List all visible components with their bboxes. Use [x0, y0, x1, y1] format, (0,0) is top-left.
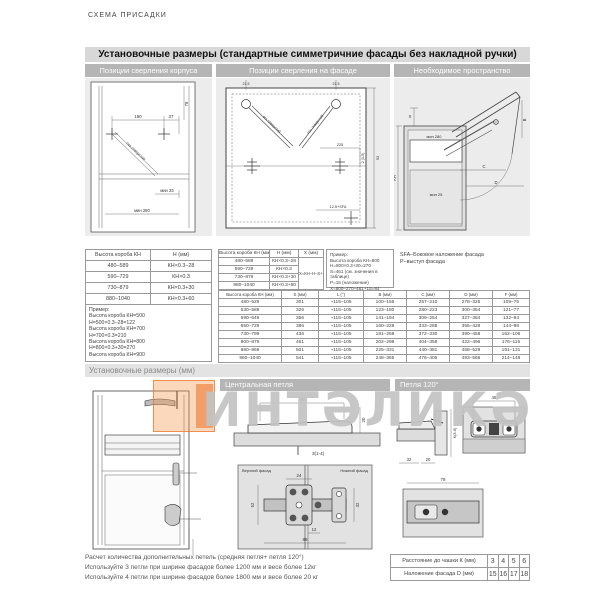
legend-sfa: SFA–Боковое наложение фасада — [400, 252, 530, 259]
central-hinge-plan-diagram: Верхний фасад Нижний фасад 24 52 — [238, 465, 372, 549]
table-row: 590–649356~115–105141–194309–254327–3841… — [219, 315, 530, 323]
legend-p: Р–выступ фасада — [400, 259, 530, 266]
table-row: 480–589КН×0.3–28 — [86, 261, 212, 272]
calc-example-box: Пример: Высота короба КН=800 Н=800×0.3+3… — [326, 249, 394, 288]
panel-title-facade: Позиции сверления на фасаде — [216, 64, 390, 77]
dim-20-120: 20 — [426, 457, 431, 462]
dim-min280-space: мин 280 — [427, 134, 443, 139]
dim-225: 225 — [337, 143, 343, 147]
table-row: 880–959501~115–105225–331440–381458–5291… — [219, 347, 530, 355]
panel-title-corpus: Позиции сверления корпуса — [85, 64, 212, 77]
table-row: 480–589КН×0.3–28 Х=КН–Н–S+Р — [219, 258, 324, 266]
dim-78: 78 — [184, 101, 189, 106]
corpus-drilling-diagram: 190 37 78 ось отверстий мин 25 мин 280 — [85, 78, 212, 236]
height-example-box: Пример: Высота короба КН=500 Н=500×0.3–2… — [85, 304, 212, 362]
main-dimensions-table: Высота короба КН (мм) S (мм) L (°) В (мм… — [218, 290, 530, 363]
space-diagram-panel: X мин 280 мин 25 B C D КН — [394, 78, 530, 236]
page-kicker: СХЕМА ПРИСАДКИ — [88, 12, 167, 19]
dim-24: 24 — [297, 473, 302, 478]
cup-distance-table: Расстояние до чашки К (мм) 3 4 5 6 Налож… — [390, 554, 530, 581]
table-row: Расстояние до чашки К (мм) 3 4 5 6 — [391, 555, 530, 568]
dim-215-left: 21.5 — [243, 82, 250, 86]
dim-89-plan: 89 — [303, 537, 308, 542]
table-row: 650–729386~115–105160–228333–288355–4281… — [219, 323, 530, 331]
dim-12: 12 — [312, 527, 317, 532]
dim-190: 190 — [134, 114, 142, 119]
footer-note: Расчет количества дополнительных петель … — [85, 553, 385, 583]
dim-d: D — [494, 180, 497, 185]
facade-height-table: Высота короба КН (мм) Н (мм) Х (мм) 480–… — [218, 249, 324, 290]
dim-min25-space: мин 25 — [430, 192, 444, 197]
dim-c: C — [482, 164, 485, 169]
panel-title-space: Необходимое пространство — [394, 64, 530, 77]
dim-min280: мин 280 — [134, 208, 150, 213]
upper-facade-label: Верхний фасад — [242, 468, 272, 473]
table-row: 530–589326~115–105123–180280–223300–3541… — [219, 307, 530, 315]
watermark: ИНТƏЛИКƏ — [202, 386, 533, 436]
lower-facade-label: Нижний фасад — [340, 468, 368, 473]
legend-note: SFA–Боковое наложение фасада Р–выступ фа… — [400, 252, 530, 266]
document-page: СХЕМА ПРИСАДКИ Установочные размеры (ста… — [0, 0, 600, 600]
facade-diagram-panel: 21.5 21.5 ось отверстий ось отверстий 22… — [216, 78, 390, 236]
dim-52: 52 — [250, 502, 255, 507]
facade-drilling-diagram: 21.5 21.5 ось отверстий ось отверстий 22… — [216, 78, 390, 236]
height-table: Высота короба КНН (мм) 480–589КН×0.3–28 … — [85, 249, 212, 305]
dim-32-120: 32 — [407, 457, 412, 462]
dim-b: B — [522, 118, 527, 121]
page-title: Установочные размеры (стандартные симмет… — [85, 47, 530, 62]
table-row: 480–529301~115–105100–156257–210278–3251… — [219, 299, 530, 307]
dim-125-sfa: 12.5+SFA — [330, 205, 347, 209]
table-row: 960–1040541~115–105248–365476–405493–566… — [219, 355, 530, 363]
corpus-diagram-panel: 190 37 78 ось отверстий мин 25 мин 280 — [85, 78, 212, 236]
table-row: Наложение фасада D (мм) 15 16 17 18 — [391, 568, 530, 581]
dim-93: 93 — [376, 156, 380, 160]
dim-x: X — [409, 114, 412, 119]
table-row: 590–729КН×0.3 — [86, 272, 212, 283]
x-formula-cell: Х=КН–Н–S+Р — [299, 258, 324, 290]
table-row: 730–879КН×0.3+30 — [86, 283, 212, 294]
dim-78: 78 — [441, 477, 446, 482]
dim-3-1-4: 3(1-4) — [312, 451, 325, 456]
dim-2-3-5: 2 (3-5) — [361, 153, 365, 164]
dim-32-plan: 32 — [355, 502, 360, 507]
table-row: 800–879461~115–105202–298404–358422–4961… — [219, 339, 530, 347]
dim-min25: мин 25 — [160, 188, 174, 193]
required-space-diagram: X мин 280 мин 25 B C D КН — [394, 78, 530, 236]
dim-kh: КН — [394, 175, 397, 180]
table-row: 730–799436~115–105181–258372–330390–4581… — [219, 331, 530, 339]
dim-215-right: 21.5 — [333, 82, 340, 86]
table-row: 880–1040КН×0.3+60 — [86, 294, 212, 305]
section2-title: Установочные размеры (мм) — [85, 364, 530, 377]
dim-37: 37 — [169, 114, 174, 119]
